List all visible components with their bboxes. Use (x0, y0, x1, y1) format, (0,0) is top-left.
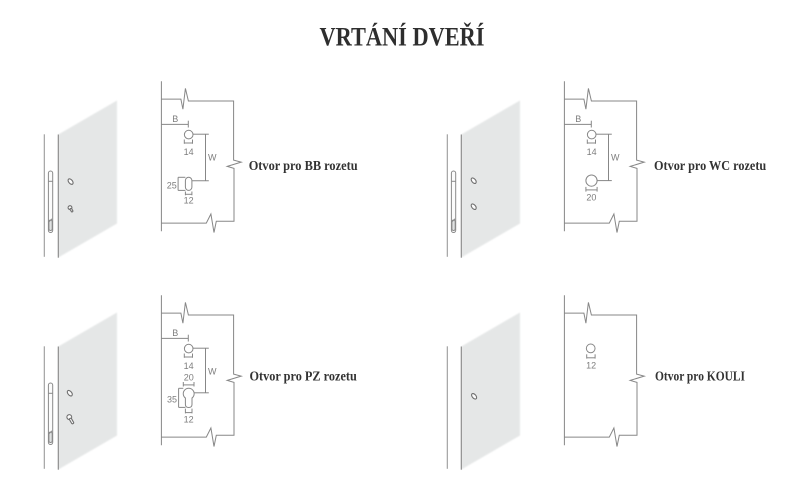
svg-text:14: 14 (184, 147, 194, 157)
svg-text:W: W (208, 153, 217, 163)
svg-text:12: 12 (184, 414, 194, 424)
svg-text:VRTÁNÍ DVEŘÍ: VRTÁNÍ DVEŘÍ (320, 22, 485, 52)
svg-text:Otvor pro PZ rozetu: Otvor pro PZ rozetu (250, 368, 358, 383)
svg-text:20: 20 (586, 192, 596, 202)
svg-text:B: B (172, 114, 178, 124)
svg-text:B: B (575, 114, 581, 124)
svg-text:12: 12 (586, 361, 596, 371)
svg-text:12: 12 (184, 196, 194, 206)
svg-text:Otvor pro KOULI: Otvor pro KOULI (655, 368, 745, 383)
svg-text:14: 14 (184, 361, 194, 371)
svg-text:14: 14 (587, 147, 597, 157)
svg-text:20: 20 (184, 372, 194, 382)
svg-text:B: B (172, 328, 178, 338)
svg-text:W: W (208, 367, 217, 377)
svg-text:Otvor pro BB rozetu: Otvor pro BB rozetu (249, 158, 358, 173)
svg-text:25: 25 (167, 181, 177, 191)
svg-text:35: 35 (167, 394, 177, 404)
svg-text:Otvor pro WC rozetu: Otvor pro WC rozetu (654, 158, 767, 173)
svg-text:W: W (611, 153, 620, 163)
